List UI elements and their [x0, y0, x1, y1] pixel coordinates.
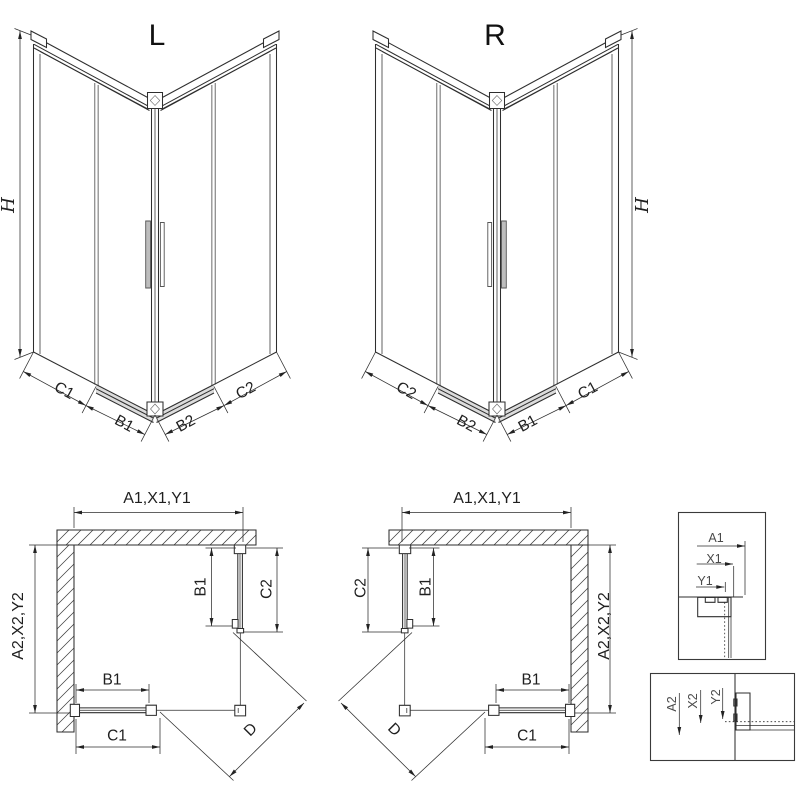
- dim-label-a2: A2: [666, 696, 679, 711]
- line-art-3d-right: [322, 0, 652, 470]
- variant-title-right: R: [484, 21, 506, 51]
- dim-label-depth: A2,X2,Y2: [11, 592, 27, 660]
- spec-sheet: L H C1 B1 B2 C2 R H C2 B2 B1 C1 A1,X1,Y1…: [0, 0, 800, 800]
- plan-view-left: A1,X1,Y1 A2,X2,Y2 B1 C2 B1 C1 D: [0, 480, 330, 800]
- dim-label-side-b1: B1: [418, 578, 434, 597]
- line-art-detail-bottom: [650, 673, 795, 761]
- dim-label-side-b1: B1: [193, 578, 209, 597]
- dim-label-height: H: [634, 197, 652, 213]
- dim-label-front-c1: C1: [517, 728, 537, 744]
- variant-title-left: L: [149, 21, 166, 51]
- view-3d-right: R H C2 B2 B1 C1: [322, 0, 652, 470]
- plan-view-right: A1,X1,Y1 A2,X2,Y2 C2 B1 B1 C1 D: [315, 480, 645, 800]
- detail-profile-top: A1 X1 Y1: [678, 512, 766, 660]
- dim-label-front-b1: B1: [522, 672, 541, 688]
- dim-label-side-c2: C2: [259, 579, 275, 599]
- dim-label-front-b1: B1: [103, 672, 122, 688]
- dim-label-side-c2: C2: [353, 578, 369, 598]
- view-3d-left: L H C1 B1 B2 C2: [0, 0, 330, 470]
- detail-profile-bottom: A2 X2 Y2: [650, 673, 795, 761]
- dim-label-front-c1: C1: [107, 728, 127, 744]
- dim-label-depth: A2,X2,Y2: [597, 592, 613, 660]
- dim-label-height: H: [0, 197, 18, 213]
- line-art-3d-left: [0, 0, 330, 470]
- dim-label-a1: A1: [708, 532, 723, 545]
- dim-label-y2: Y2: [710, 689, 723, 704]
- dim-label-width: A1,X1,Y1: [123, 491, 191, 507]
- dim-label-y1: Y1: [697, 575, 712, 588]
- dim-label-x2: X2: [687, 693, 700, 708]
- dim-label-x1: X1: [706, 553, 721, 566]
- line-art-plan-left: [0, 480, 330, 800]
- dim-label-width: A1,X1,Y1: [453, 491, 521, 507]
